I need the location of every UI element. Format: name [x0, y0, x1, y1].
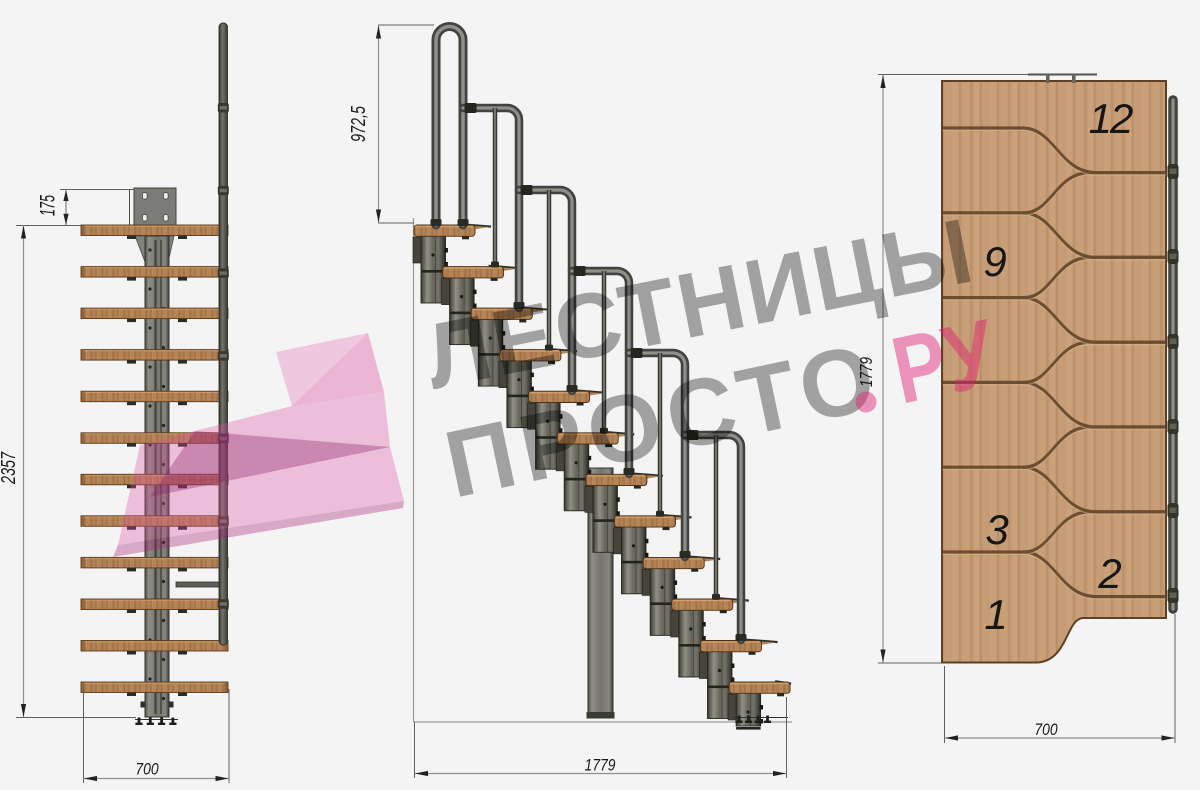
svg-text:700: 700 — [1034, 721, 1058, 740]
svg-text:3: 3 — [985, 506, 1008, 553]
svg-text:9: 9 — [983, 238, 1006, 285]
svg-text:700: 700 — [135, 760, 159, 779]
svg-text:972,5: 972,5 — [347, 106, 370, 142]
svg-text:2: 2 — [1097, 550, 1121, 597]
svg-text:1779: 1779 — [585, 756, 616, 775]
svg-text:1: 1 — [984, 591, 1007, 638]
svg-text:175: 175 — [35, 195, 59, 216]
svg-text:12: 12 — [1089, 95, 1133, 142]
svg-text:2357: 2357 — [0, 451, 20, 485]
